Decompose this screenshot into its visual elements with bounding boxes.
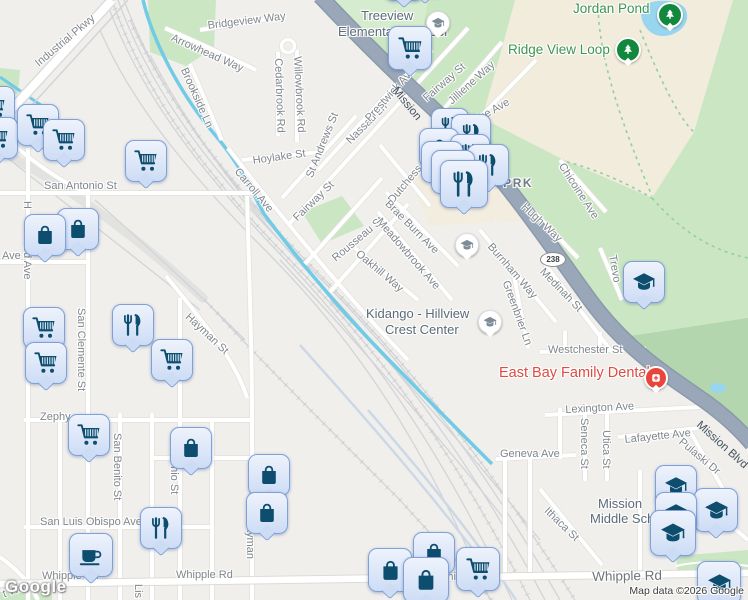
map-canvas[interactable]: Industrial PkwyBridgeview WayArrowhead W… bbox=[0, 0, 748, 600]
google-logo[interactable]: Google bbox=[5, 577, 67, 597]
map-base bbox=[0, 0, 748, 600]
map-attribution[interactable]: Map data ©2026 Google bbox=[629, 585, 744, 597]
small-pond bbox=[710, 383, 726, 393]
